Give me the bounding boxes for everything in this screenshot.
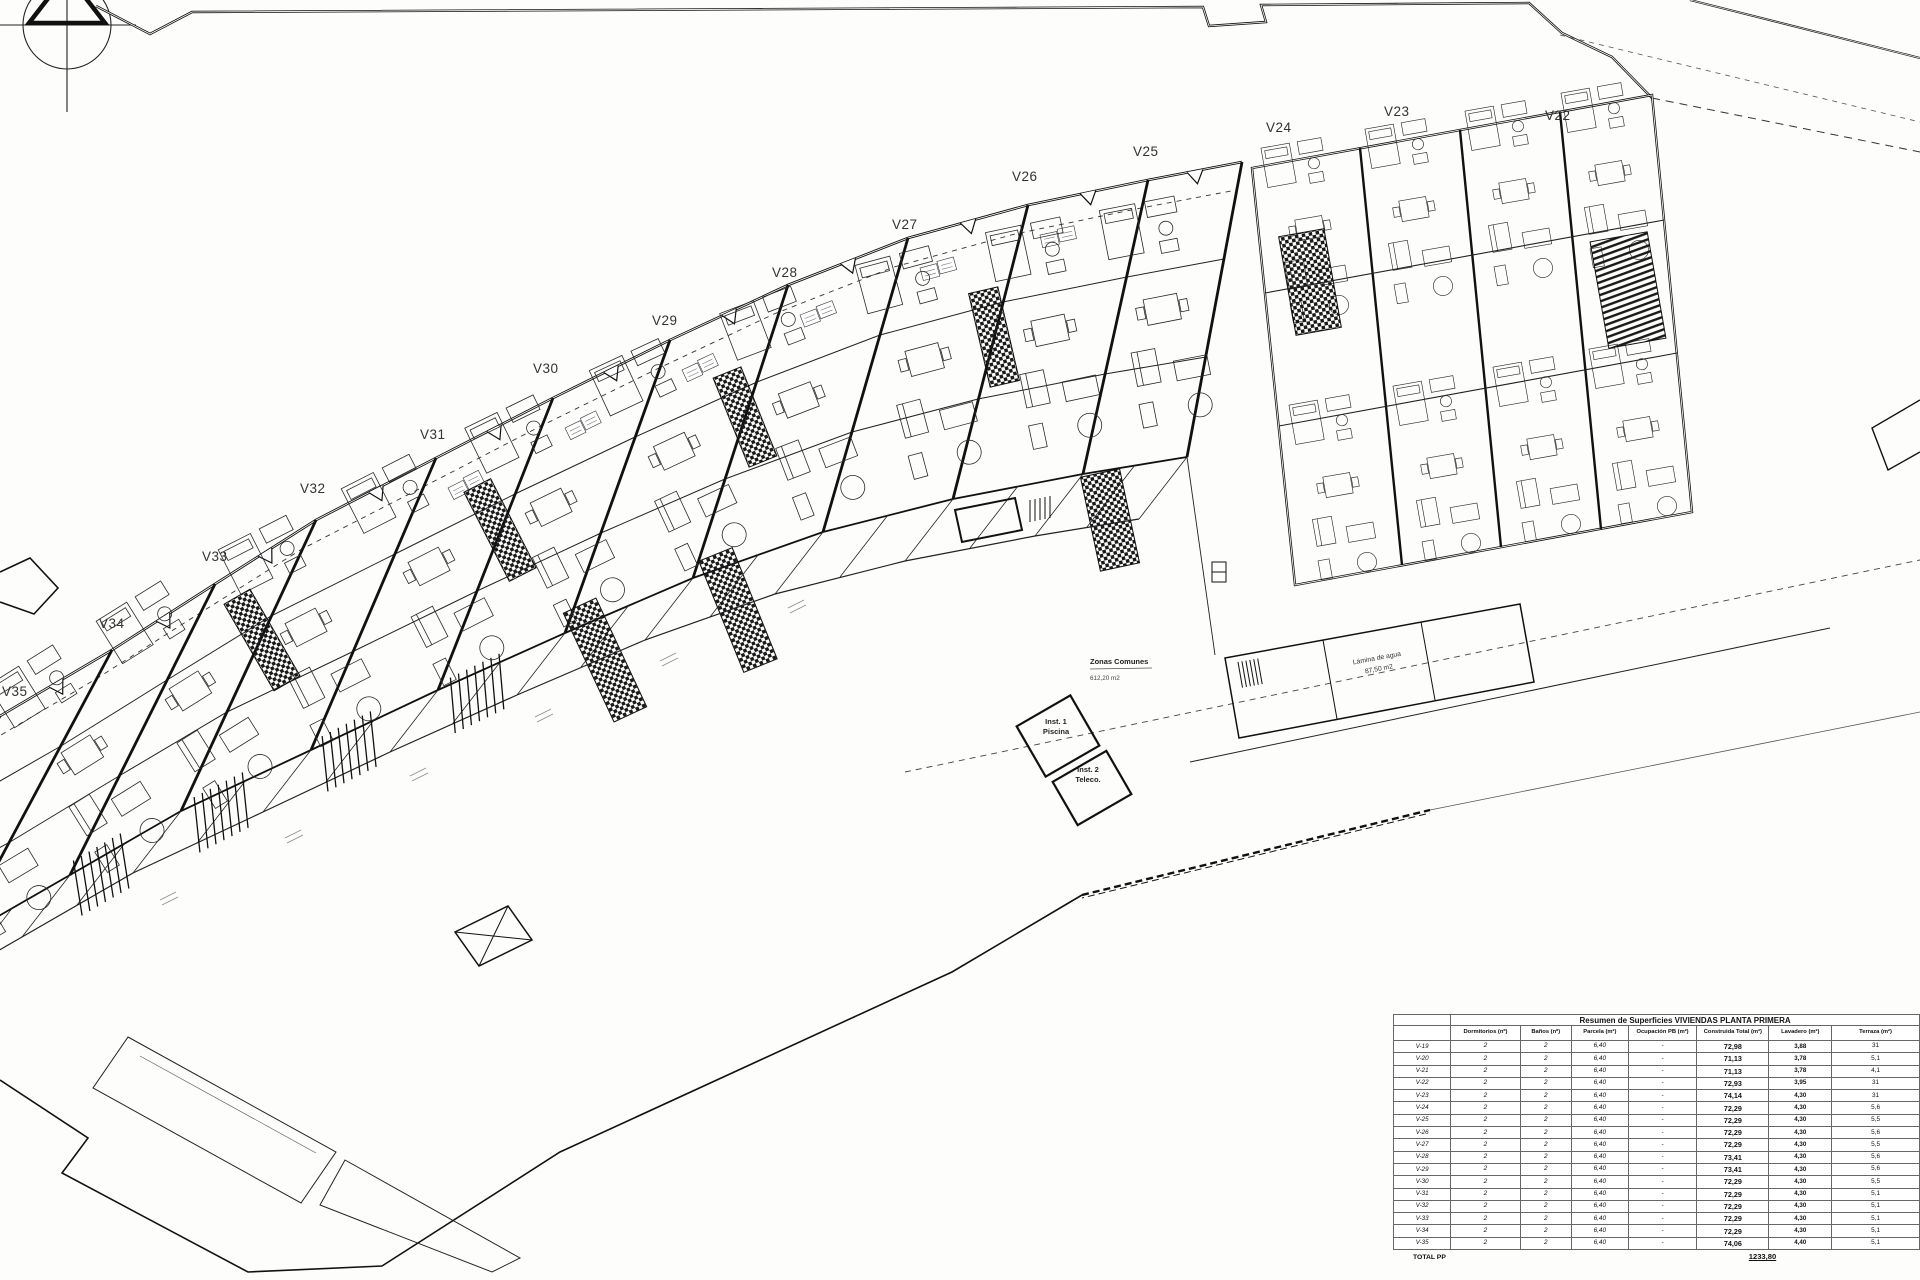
table-cell: - [1628,1225,1697,1237]
table-cell: 31 [1832,1090,1920,1102]
col-header-banos: Baños (nº) [1520,1026,1571,1041]
table-cell: 6,40 [1571,1213,1628,1225]
table-cell: 2 [1451,1053,1520,1065]
unit-label-v26: V26 [1012,169,1038,184]
table-cell: 73,41 [1697,1151,1769,1163]
table-cell: 2 [1451,1041,1520,1053]
table-cell: 2 [1520,1163,1571,1175]
table-row: V-24226,40-72,294,305,6 [1394,1102,1920,1114]
table-row: V-19226,40-72,983,8831 [1394,1041,1920,1053]
table-cell: 2 [1451,1176,1520,1188]
table-cell: 31 [1832,1077,1920,1089]
table-cell: 2 [1520,1041,1571,1053]
table-cell: 5,5 [1832,1114,1920,1126]
col-header-lavadero: Lavadero (m²) [1769,1026,1832,1041]
col-header-ocupacion: Ocupación PB (m²) [1628,1026,1697,1041]
table-cell: 6,40 [1571,1237,1628,1249]
table-row: V-21226,40-71,133,784,1 [1394,1065,1920,1077]
table-cell: 3,88 [1769,1041,1832,1053]
table-cell: 4,30 [1769,1200,1832,1212]
lamina-label: Lámina de agua [1352,651,1401,667]
table-cell: 5,1 [1832,1053,1920,1065]
table-row: V-34226,40-72,294,305,1 [1394,1225,1920,1237]
table-cell: 2 [1520,1237,1571,1249]
table-cell: 6,40 [1571,1200,1628,1212]
table-cell: 2 [1520,1114,1571,1126]
table-cell: 72,98 [1697,1041,1769,1053]
table-cell: V-28 [1394,1151,1451,1163]
table-cell: 3,78 [1769,1065,1832,1077]
table-title-row: Resumen de Superficies VIVIENDAS PLANTA … [1394,1015,1920,1026]
col-header-terraza: Terraza (m²) [1832,1026,1920,1041]
table-cell: V-21 [1394,1065,1451,1077]
table-cell: 6,40 [1571,1127,1628,1139]
table-cell: 2 [1520,1213,1571,1225]
table-cell: - [1628,1200,1697,1212]
table-cell: 6,40 [1571,1188,1628,1200]
table-cell: - [1628,1127,1697,1139]
unit-label-v35: V35 [2,684,28,699]
table-cell: 2 [1451,1200,1520,1212]
inst2-label-1: Inst. 2 [1077,765,1099,774]
table-cell: V-22 [1394,1077,1451,1089]
table-cell: 5,1 [1832,1200,1920,1212]
table-cell: 3,95 [1769,1077,1832,1089]
table-cell: 6,40 [1571,1163,1628,1175]
table-cell: 6,40 [1571,1114,1628,1126]
unit-label-v27: V27 [892,217,918,232]
terrace-parking-band [0,457,1187,1068]
table-cell: 72,29 [1697,1139,1769,1151]
inst1-label-1: Inst. 1 [1045,717,1067,726]
table-cell: 6,40 [1571,1053,1628,1065]
table-cell: V-30 [1394,1176,1451,1188]
table-cell: 2 [1451,1188,1520,1200]
table-title: Resumen de Superficies VIVIENDAS PLANTA … [1451,1015,1920,1026]
entrance-markers [49,169,1205,698]
table-cell: 2 [1520,1151,1571,1163]
table-cell: 2 [1451,1151,1520,1163]
table-cell: V-25 [1394,1114,1451,1126]
table-row: V-23226,40-74,144,3031 [1394,1090,1920,1102]
table-cell: 4,30 [1769,1102,1832,1114]
table-cell: V-20 [1394,1053,1451,1065]
table-cell: 6,40 [1571,1151,1628,1163]
table-cell: V-19 [1394,1041,1451,1053]
table-cell: 4,30 [1769,1188,1832,1200]
table-cell: 6,40 [1571,1041,1628,1053]
table-cell: 2 [1451,1065,1520,1077]
table-cell: V-27 [1394,1139,1451,1151]
table-cell: 5,1 [1832,1225,1920,1237]
table-cell: 6,40 [1571,1077,1628,1089]
table-cell: V-35 [1394,1237,1451,1249]
table-cell: 72,29 [1697,1188,1769,1200]
table-cell: V-23 [1394,1090,1451,1102]
right-apartment-block [1252,82,1692,585]
table-cell: 72,29 [1697,1114,1769,1126]
table-cell: 2 [1451,1114,1520,1126]
table-cell: - [1628,1163,1697,1175]
unit-label-v32: V32 [300,481,326,496]
table-cell: V-24 [1394,1102,1451,1114]
housing-band [0,162,1242,1006]
stairs [224,287,1140,722]
table-cell: 2 [1520,1102,1571,1114]
table-cell: 72,29 [1697,1225,1769,1237]
table-cell: V-34 [1394,1225,1451,1237]
table-cell: 2 [1520,1176,1571,1188]
table-row: V-31226,40-72,294,305,1 [1394,1188,1920,1200]
table-cell: 72,29 [1697,1213,1769,1225]
table-cell: 2 [1520,1200,1571,1212]
table-cell: 2 [1451,1139,1520,1151]
table-cell: - [1628,1151,1697,1163]
table-cell: 6,40 [1571,1139,1628,1151]
table-cell: 2 [1520,1065,1571,1077]
table-row: V-32226,40-72,294,305,1 [1394,1200,1920,1212]
table-row: V-25226,40-72,294,305,5 [1394,1114,1920,1126]
table-cell: 4,30 [1769,1176,1832,1188]
table-cell: V-32 [1394,1200,1451,1212]
table-cell: 2 [1520,1139,1571,1151]
table-row: V-26226,40-72,294,305,6 [1394,1127,1920,1139]
table-cell: - [1628,1176,1697,1188]
table-row: V-27226,40-72,294,305,5 [1394,1139,1920,1151]
unit-label-v22: V22 [1545,108,1571,123]
table-cell: 6,40 [1571,1065,1628,1077]
inst2-label-2: Teleco. [1075,775,1100,784]
table-cell: - [1628,1188,1697,1200]
table-cell: 2 [1520,1053,1571,1065]
table-cell: 4,1 [1832,1065,1920,1077]
table-cell: - [1628,1213,1697,1225]
unit-label-v25: V25 [1133,144,1159,159]
unit-label-v34: V34 [99,616,125,631]
table-row: V-30226,40-72,294,305,5 [1394,1176,1920,1188]
architectural-site-plan-page: { "plan": { "unit_labels": ["V22","V23",… [0,0,1920,1280]
table-cell: V-26 [1394,1127,1451,1139]
table-cell: 6,40 [1571,1176,1628,1188]
unit-furniture [0,196,1218,940]
unit-label-v28: V28 [772,265,798,280]
table-cell: - [1628,1077,1697,1089]
table-row: V-33226,40-72,294,305,1 [1394,1213,1920,1225]
table-cell: - [1628,1053,1697,1065]
table-cell: 72,29 [1697,1102,1769,1114]
table-cell: 2 [1451,1102,1520,1114]
transformer-mark [455,906,532,966]
unit-label-v31: V31 [420,427,446,442]
table-cell: 2 [1520,1090,1571,1102]
table-cell: 6,40 [1571,1102,1628,1114]
table-cell: 5,6 [1832,1102,1920,1114]
table-cell: 5,6 [1832,1163,1920,1175]
table-cell: - [1628,1041,1697,1053]
table-cell: V-29 [1394,1163,1451,1175]
table-cell: 4,30 [1769,1090,1832,1102]
table-cell: 5,6 [1832,1127,1920,1139]
table-cell: 5,1 [1832,1213,1920,1225]
zonas-comunes-label: Zonas Comunes [1090,657,1148,666]
col-header-unit [1394,1026,1451,1041]
table-cell: 5,1 [1832,1188,1920,1200]
table-cell: 4,30 [1769,1127,1832,1139]
table-cell: 74,06 [1697,1237,1769,1249]
col-header-dormitorios: Dormitorios (nº) [1451,1026,1520,1041]
table-cell: - [1628,1102,1697,1114]
table-cell: 2 [1451,1163,1520,1175]
table-cell: 74,14 [1697,1090,1769,1102]
inst1-label-2: Piscina [1043,727,1070,736]
table-cell: 4,30 [1769,1139,1832,1151]
table-cell: 4,30 [1769,1114,1832,1126]
unit-label-v24: V24 [1266,120,1292,135]
col-header-construida: Construida Total (m²) [1697,1026,1769,1041]
table-cell: - [1628,1139,1697,1151]
fence-line [1082,712,1920,898]
party-walls [0,162,1242,1006]
table-cell: 2 [1520,1188,1571,1200]
table-cell: 71,13 [1697,1065,1769,1077]
table-cell: 4,40 [1769,1237,1832,1249]
table-cell: 72,29 [1697,1127,1769,1139]
table-cell: 6,40 [1571,1225,1628,1237]
table-cell: V-33 [1394,1213,1451,1225]
total-row-label: TOTAL PP [1413,1254,1446,1261]
table-cell: 4,30 [1769,1225,1832,1237]
table-cell: 2 [1451,1077,1520,1089]
table-cell: 6,40 [1571,1090,1628,1102]
table-cell: 31 [1832,1041,1920,1053]
table-cell: 2 [1451,1127,1520,1139]
table-cell: 72,29 [1697,1176,1769,1188]
unit-label-v23: V23 [1384,104,1410,119]
table-cell: 72,29 [1697,1200,1769,1212]
unit-label-v33: V33 [202,549,228,564]
table-row: V-35226,40-74,064,405,1 [1394,1237,1920,1249]
table-cell: 5,5 [1832,1176,1920,1188]
col-header-parcela: Parcela (m²) [1571,1026,1628,1041]
table-cell: 71,13 [1697,1053,1769,1065]
table-cell: V-31 [1394,1188,1451,1200]
table-cell: 2 [1520,1127,1571,1139]
table-cell: 4,30 [1769,1213,1832,1225]
table-cell: 4,30 [1769,1163,1832,1175]
table-row: V-22226,40-72,933,9531 [1394,1077,1920,1089]
table-cell: 2 [1451,1213,1520,1225]
surface-summary-table: Resumen de Superficies VIVIENDAS PLANTA … [1393,1014,1920,1250]
lamina-area: 87,50 m2 [1364,663,1393,675]
table-header-row: Dormitorios (nº) Baños (nº) Parcela (m²)… [1394,1026,1920,1041]
table-cell: 72,93 [1697,1077,1769,1089]
table-cell: 5,1 [1832,1237,1920,1249]
table-cell: 2 [1520,1077,1571,1089]
table-cell: 3,78 [1769,1053,1832,1065]
unit-label-v29: V29 [652,313,678,328]
table-cell: 4,30 [1769,1151,1832,1163]
table-cell: 73,41 [1697,1163,1769,1175]
table-cell: 2 [1520,1225,1571,1237]
table-row: V-29226,40-73,414,305,6 [1394,1163,1920,1175]
table-cell: - [1628,1065,1697,1077]
table-row: V-28226,40-73,414,305,6 [1394,1151,1920,1163]
table-cell: - [1628,1114,1697,1126]
table-cell: 2 [1451,1090,1520,1102]
total-construida-value: 1233,80 [1725,1252,1800,1261]
table-cell: 2 [1451,1225,1520,1237]
table-cell: 2 [1451,1237,1520,1249]
table-cell: 5,5 [1832,1139,1920,1151]
zonas-comunes-area: 612,20 m2 [1090,675,1120,682]
table-cell: - [1628,1090,1697,1102]
table-cell: - [1628,1237,1697,1249]
table-row: V-20226,40-71,133,785,1 [1394,1053,1920,1065]
table-cell: 5,6 [1832,1151,1920,1163]
unit-label-v30: V30 [533,361,559,376]
